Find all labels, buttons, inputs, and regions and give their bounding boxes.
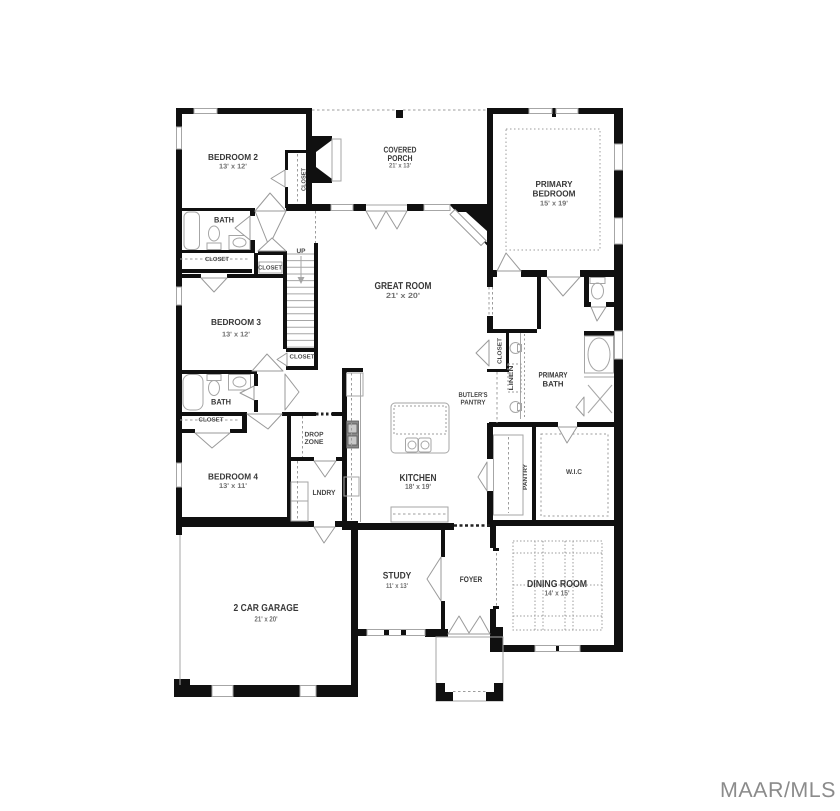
svg-text:13' x 12': 13' x 12' bbox=[219, 164, 247, 171]
svg-text:21' x 13': 21' x 13' bbox=[389, 163, 411, 170]
svg-text:CLOSET: CLOSET bbox=[301, 168, 308, 191]
svg-text:2 CAR GARAGE: 2 CAR GARAGE bbox=[234, 603, 299, 614]
svg-text:PRIMARY: PRIMARY bbox=[536, 179, 573, 189]
svg-text:BUTLER'S: BUTLER'S bbox=[459, 392, 488, 399]
svg-text:14' x 15': 14' x 15' bbox=[545, 589, 570, 598]
svg-text:ZONE: ZONE bbox=[305, 439, 324, 446]
svg-text:BEDROOM: BEDROOM bbox=[533, 189, 576, 199]
svg-text:UP: UP bbox=[296, 248, 306, 255]
svg-text:CLOSET: CLOSET bbox=[290, 354, 315, 361]
svg-text:CLOSET: CLOSET bbox=[258, 265, 282, 272]
svg-text:BEDROOM 2: BEDROOM 2 bbox=[208, 152, 258, 162]
svg-text:STUDY: STUDY bbox=[383, 571, 412, 582]
svg-text:BATH: BATH bbox=[214, 216, 234, 225]
svg-text:LNDRY: LNDRY bbox=[313, 488, 336, 497]
svg-text:LINEN: LINEN bbox=[508, 366, 515, 391]
svg-text:CLOSET: CLOSET bbox=[205, 256, 229, 263]
svg-text:FOYER: FOYER bbox=[460, 575, 483, 584]
svg-text:DROP: DROP bbox=[305, 432, 324, 439]
svg-text:W.I.C: W.I.C bbox=[566, 469, 582, 476]
svg-text:BEDROOM 4: BEDROOM 4 bbox=[208, 472, 258, 482]
svg-text:21' x 20': 21' x 20' bbox=[386, 291, 420, 300]
svg-text:15' x 19': 15' x 19' bbox=[540, 201, 568, 208]
svg-text:MAAR/MLS: MAAR/MLS bbox=[720, 778, 836, 802]
svg-text:BEDROOM 3: BEDROOM 3 bbox=[211, 317, 261, 327]
svg-text:18' x 19': 18' x 19' bbox=[405, 482, 431, 491]
svg-text:PORCH: PORCH bbox=[388, 153, 413, 163]
svg-text:BATH: BATH bbox=[211, 398, 231, 407]
svg-text:PRIMARY: PRIMARY bbox=[539, 371, 569, 380]
svg-text:PANTRY: PANTRY bbox=[461, 400, 486, 407]
svg-text:21' x 20': 21' x 20' bbox=[255, 615, 278, 624]
svg-text:CLOSET: CLOSET bbox=[199, 417, 224, 424]
svg-text:PANTRY: PANTRY bbox=[522, 464, 529, 490]
svg-text:CLOSET: CLOSET bbox=[497, 338, 504, 364]
svg-text:13' x 12': 13' x 12' bbox=[222, 332, 250, 339]
svg-text:11' x 13': 11' x 13' bbox=[386, 583, 408, 590]
svg-text:BATH: BATH bbox=[543, 380, 564, 389]
svg-text:13' x 11': 13' x 11' bbox=[219, 483, 247, 490]
